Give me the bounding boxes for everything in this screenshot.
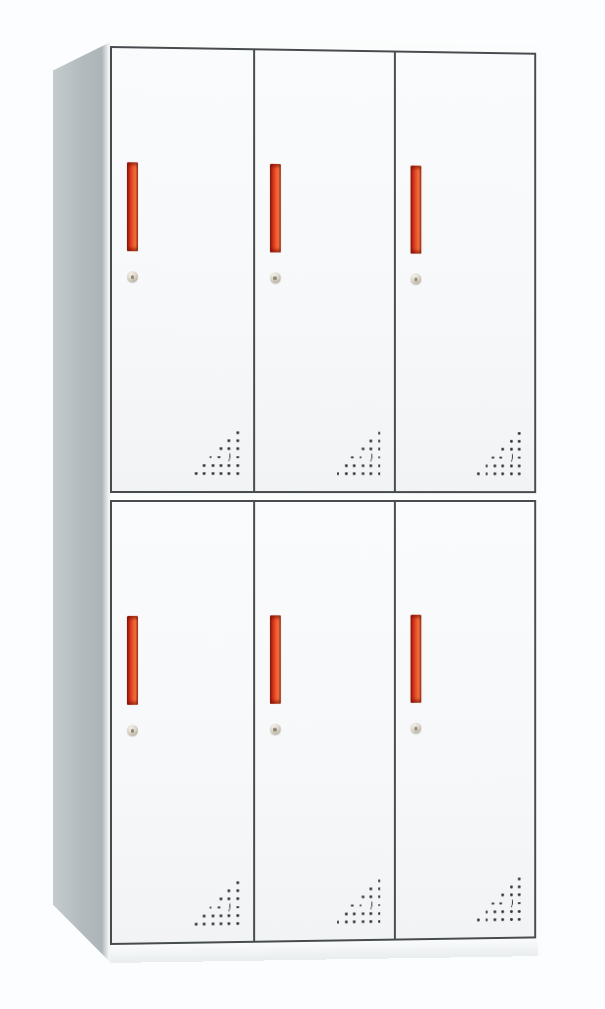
vent-row [337,472,381,475]
vent-hole-icon [345,464,348,467]
vent-crescent-mark [367,452,373,462]
vent-hole-icon [203,472,206,475]
vent-hole-icon [491,902,494,905]
locker-door [255,50,394,491]
vent-hole-icon [502,448,505,451]
locker-door [112,48,253,491]
vent-hole-icon [345,921,348,924]
locker-door [396,502,534,939]
vent-hole-icon [510,894,513,897]
vent-hole-icon [518,885,521,888]
vent-row [491,456,520,459]
vent-hole-icon [370,912,373,915]
door-handle [411,615,422,703]
vent-hole-icon [236,914,239,917]
vent-crescent-mark [507,898,513,908]
vent-row [502,894,521,897]
keyhole-lock [270,724,281,735]
vent-row [485,910,520,913]
vent-hole-icon [211,464,214,467]
locker-row-top [110,46,536,493]
vent-hole-icon [220,923,223,926]
locker-door [112,502,253,943]
vent-hole-icon [518,894,521,897]
vent-row [236,431,239,434]
ventilation-holes [477,432,521,476]
vent-hole-icon [493,473,496,476]
vent-hole-icon [500,456,503,459]
vent-hole-icon [370,464,373,467]
vent-row [351,904,381,907]
door-handle [270,164,281,253]
vent-hole-icon [510,464,513,467]
vent-hole-icon [510,886,513,889]
door-handle [127,162,138,251]
vent-hole-icon [378,887,381,890]
vent-row [203,464,239,467]
vent-hole-icon [228,472,231,475]
vent-hole-icon [353,921,356,924]
vent-hole-icon [485,919,488,922]
vent-hole-icon [493,910,496,913]
vent-hole-icon [502,918,505,921]
vent-hole-icon [217,906,220,909]
vent-hole-icon [378,912,381,915]
vent-hole-icon [361,472,364,475]
vent-crescent-mark [367,900,373,910]
vent-row [510,885,521,888]
vent-hole-icon [220,448,223,451]
vent-row [491,902,520,905]
vent-hole-icon [518,464,521,467]
vent-row [485,464,520,467]
vent-hole-icon [236,898,239,901]
vent-hole-icon [211,472,214,475]
vent-hole-icon [518,902,521,905]
vent-hole-icon [220,914,223,917]
door-handle [270,615,281,704]
vent-hole-icon [353,472,356,475]
vent-hole-icon [518,440,521,443]
vent-row [195,922,239,925]
vent-row [195,472,239,475]
vent-hole-icon [361,896,364,899]
vent-hole-icon [378,440,381,443]
vent-hole-icon [378,464,381,467]
vent-hole-icon [378,431,381,434]
vent-hole-icon [195,923,198,926]
vent-hole-icon [518,877,521,880]
vent-hole-icon [477,919,480,922]
vent-hole-icon [345,472,348,475]
keyhole-lock [127,725,138,736]
vent-hole-icon [378,904,381,907]
vent-row [477,473,521,476]
vent-hole-icon [518,456,521,459]
vent-row [351,456,381,459]
vent-hole-icon [236,439,239,442]
vent-hole-icon [378,896,381,899]
cabinet-side-panel [53,38,111,963]
vent-hole-icon [485,464,488,467]
keyhole-lock [411,273,422,284]
vent-hole-icon [337,921,340,924]
vent-hole-icon [209,456,212,459]
ventilation-holes [337,431,381,475]
vent-hole-icon [370,440,373,443]
vent-hole-icon [510,473,513,476]
vent-row [337,920,381,923]
vent-hole-icon [228,464,231,467]
vent-hole-icon [353,464,356,467]
vent-hole-icon [236,448,239,451]
vent-row [209,906,239,909]
vent-hole-icon [502,464,505,467]
vent-hole-icon [370,887,373,890]
vent-hole-icon [477,473,480,476]
vent-hole-icon [209,906,212,909]
vent-hole-icon [351,904,354,907]
vent-hole-icon [195,472,198,475]
vent-hole-icon [361,912,364,915]
vent-hole-icon [378,879,381,882]
vent-hole-icon [370,920,373,923]
vent-hole-icon [203,464,206,467]
vent-row [361,448,380,451]
vent-hole-icon [236,881,239,884]
vent-hole-icon [502,910,505,913]
vent-row [370,440,381,443]
vent-row [203,914,239,917]
vent-hole-icon [211,923,214,926]
vent-hole-icon [378,456,381,459]
vent-row [518,432,521,435]
vent-row [510,440,521,443]
vent-hole-icon [361,920,364,923]
vent-hole-icon [203,923,206,926]
vent-row [345,464,381,467]
vent-row [518,877,521,880]
vent-hole-icon [502,473,505,476]
vent-hole-icon [361,448,364,451]
locker-cabinet [53,38,549,963]
vent-hole-icon [518,918,521,921]
cabinet-front [110,38,542,963]
vent-hole-icon [510,440,513,443]
keyhole-lock [270,272,281,283]
vent-hole-icon [378,448,381,451]
vent-hole-icon [228,448,231,451]
vent-hole-icon [228,922,231,925]
locker-door [255,502,394,941]
vent-hole-icon [359,904,362,907]
vent-hole-icon [378,472,381,475]
vent-hole-icon [502,894,505,897]
vent-hole-icon [220,472,223,475]
vent-row [378,879,381,882]
vent-hole-icon [359,456,362,459]
vent-hole-icon [337,472,340,475]
vent-hole-icon [220,464,223,467]
door-handle [411,166,422,254]
vent-hole-icon [370,472,373,475]
vent-row [209,456,239,459]
vent-hole-icon [203,915,206,918]
vent-hole-icon [236,906,239,909]
vent-hole-icon [378,920,381,923]
vent-hole-icon [518,910,521,913]
locker-door [396,53,534,492]
door-handle [127,616,138,705]
vent-hole-icon [211,914,214,917]
vent-hole-icon [370,448,373,451]
vent-hole-icon [236,472,239,475]
vent-row [228,889,239,892]
vent-row [370,887,381,890]
vent-hole-icon [236,431,239,434]
vent-hole-icon [491,456,494,459]
vent-row [345,912,381,915]
vent-row [502,448,521,451]
vent-hole-icon [228,439,231,442]
vent-hole-icon [493,918,496,921]
vent-hole-icon [236,922,239,925]
vent-hole-icon [345,912,348,915]
vent-crescent-mark [507,452,513,462]
ventilation-holes [337,879,381,924]
vent-hole-icon [493,464,496,467]
ventilation-holes [477,877,521,921]
vent-hole-icon [485,910,488,913]
vent-hole-icon [228,889,231,892]
locker-row-bottom [110,500,536,945]
vent-row [477,918,521,921]
vent-hole-icon [236,889,239,892]
vent-hole-icon [510,448,513,451]
vent-hole-icon [228,898,231,901]
vent-row [236,881,239,884]
vent-crescent-mark [225,452,231,462]
vent-crescent-mark [225,902,231,912]
vent-hole-icon [236,464,239,467]
ventilation-holes [195,431,239,475]
vent-hole-icon [351,456,354,459]
vent-hole-icon [220,898,223,901]
ventilation-holes [195,881,239,926]
vent-hole-icon [361,464,364,467]
keyhole-lock [411,723,422,734]
vent-hole-icon [518,448,521,451]
product-photo [0,0,605,1009]
vent-row [220,898,239,901]
vent-hole-icon [217,456,220,459]
vent-hole-icon [370,896,373,899]
vent-row [361,896,380,899]
vent-hole-icon [236,456,239,459]
keyhole-lock [127,271,138,282]
vent-hole-icon [518,432,521,435]
vent-hole-icon [228,914,231,917]
vent-row [220,448,239,451]
vent-hole-icon [485,473,488,476]
vent-hole-icon [353,912,356,915]
vent-row [378,431,381,434]
vent-row [228,439,239,442]
door-grid [110,46,536,945]
vent-hole-icon [500,902,503,905]
vent-hole-icon [510,910,513,913]
vent-hole-icon [518,473,521,476]
vent-hole-icon [510,918,513,921]
